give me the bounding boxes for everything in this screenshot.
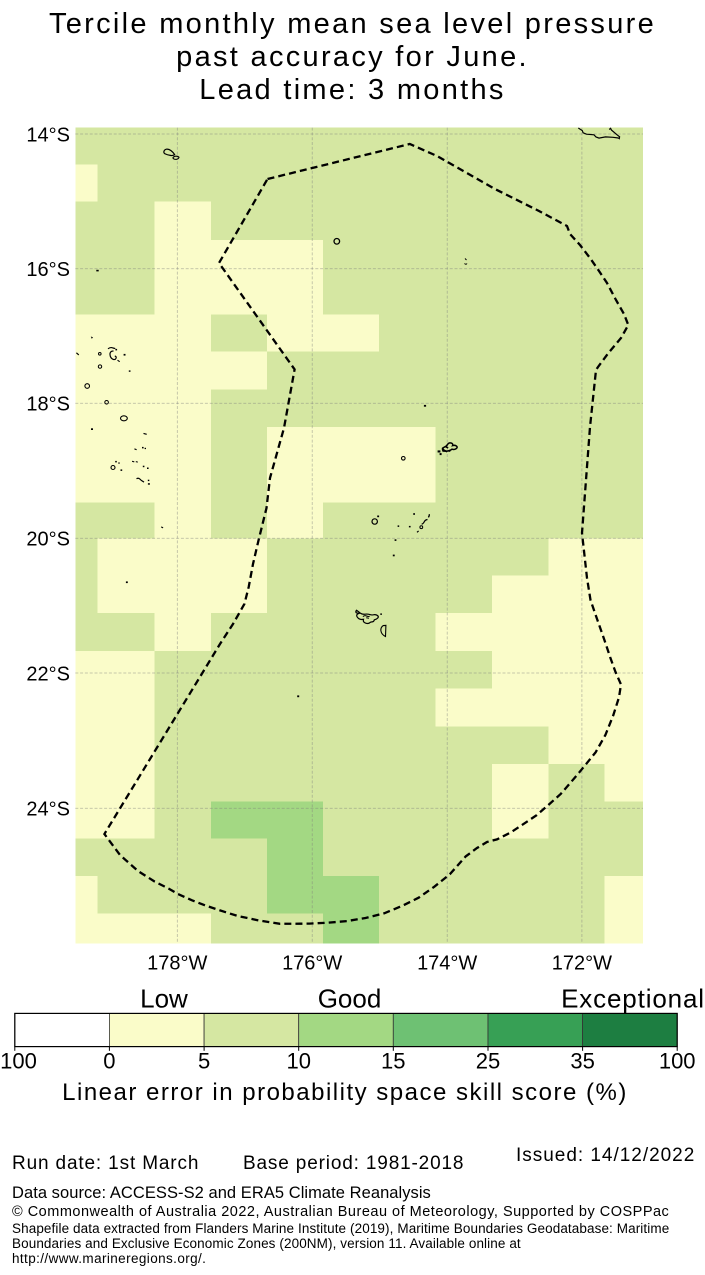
svg-text:10: 10 [286, 1049, 310, 1074]
svg-text:100: 100 [659, 1049, 696, 1074]
svg-text:25: 25 [476, 1049, 500, 1074]
svg-text:16°S: 16°S [26, 259, 70, 281]
svg-text:0: 0 [103, 1049, 115, 1074]
svg-text:Good: Good [318, 984, 382, 1014]
svg-text:Linear error in probability sp: Linear error in probability space skill … [62, 1079, 628, 1106]
svg-text:178°W: 178°W [147, 953, 207, 975]
svg-text:176°W: 176°W [282, 953, 342, 975]
svg-text:-100: -100 [0, 1049, 37, 1074]
svg-text:18°S: 18°S [26, 394, 70, 416]
svg-text:14°S: 14°S [26, 124, 70, 146]
svg-text:Exceptional: Exceptional [561, 984, 705, 1014]
svg-text:20°S: 20°S [26, 529, 70, 551]
svg-text:Low: Low [140, 984, 188, 1014]
svg-text:35: 35 [570, 1049, 594, 1074]
svg-text:22°S: 22°S [26, 663, 70, 685]
svg-text:15: 15 [381, 1049, 405, 1074]
svg-text:5: 5 [198, 1049, 210, 1074]
svg-text:24°S: 24°S [26, 799, 70, 821]
svg-text:174°W: 174°W [417, 953, 477, 975]
svg-text:172°W: 172°W [552, 953, 612, 975]
